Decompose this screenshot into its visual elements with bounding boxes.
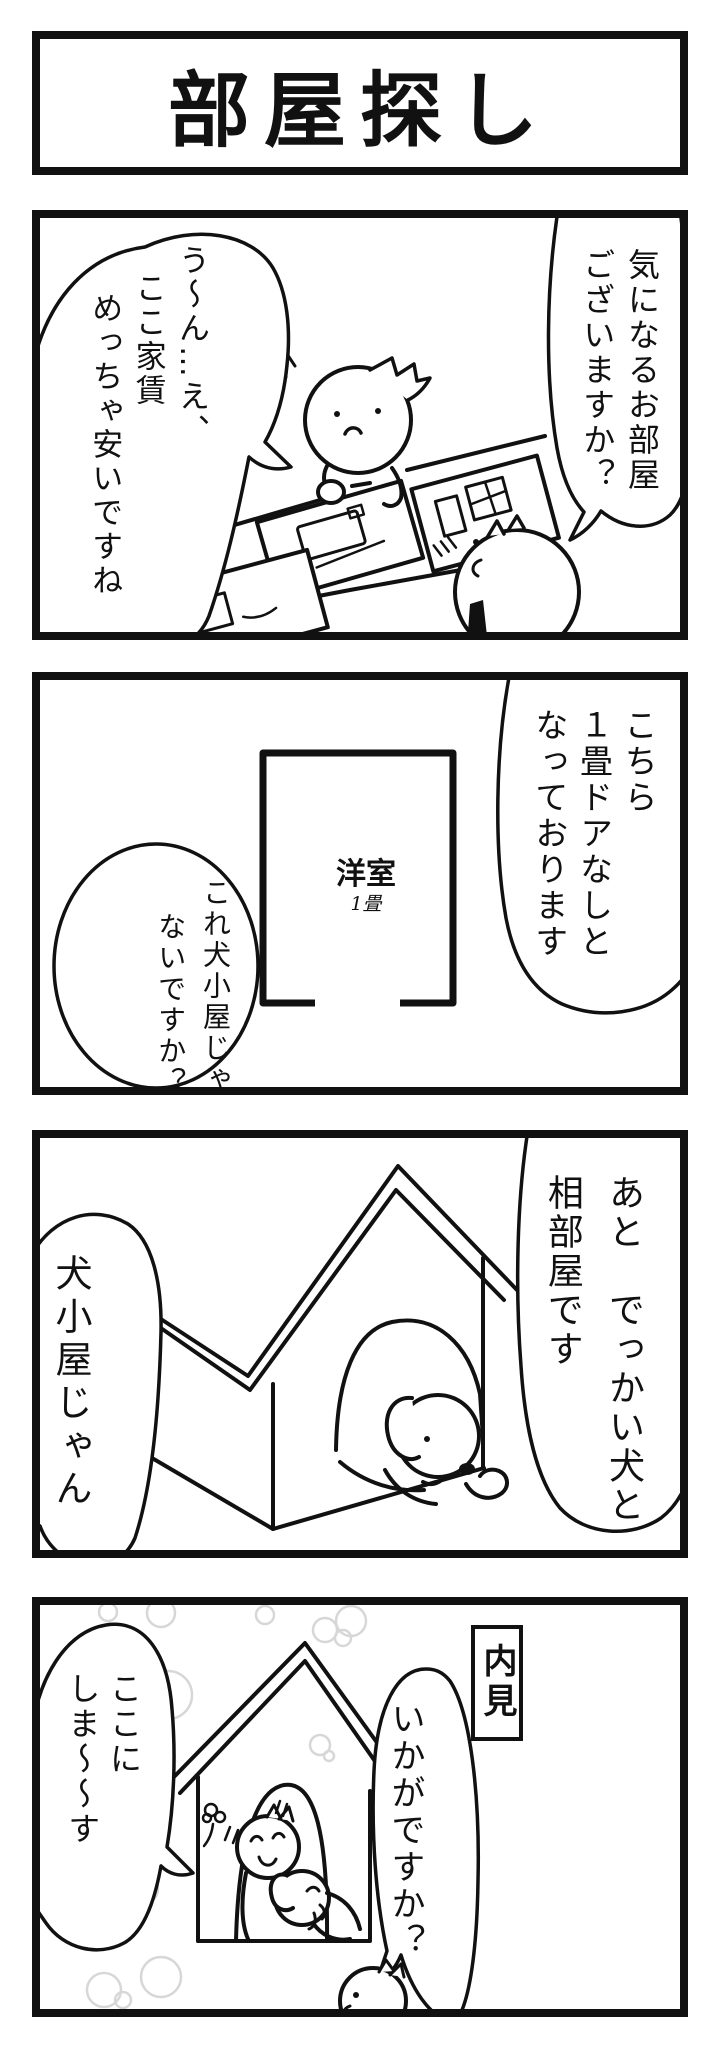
speech-bubble-text-agent: こちら １畳ドアなしと なっております xyxy=(526,708,660,960)
doghouse-drawing xyxy=(144,1166,517,1529)
panel-4: 内見 いかがですか？ ここに しま〜〜す xyxy=(32,1597,688,2017)
agent-character-drawing xyxy=(340,1960,406,2009)
speech-line: めっちゃ安いですね xyxy=(82,244,125,598)
speech-line: あと でっかい犬と xyxy=(593,1174,654,1525)
speech-line: いかがですか？ xyxy=(380,1701,428,1960)
panel-3: あと でっかい犬と 相部屋です 犬小屋じゃん xyxy=(32,1130,688,1558)
speech-bubble-text-agent: いかがですか？ xyxy=(380,1701,428,1960)
speech-line: なっております xyxy=(526,708,571,960)
scene-caption-box: 内見 xyxy=(471,1625,523,1741)
speech-bubble-text-agent: 気になるお部屋 ございますか？ xyxy=(574,248,664,493)
scene-caption: 内見 xyxy=(480,1643,514,1723)
speech-line: 相部屋です xyxy=(532,1174,593,1525)
speech-line: 気になるお部屋 xyxy=(619,248,664,493)
speech-line: ここ家賃 xyxy=(125,244,168,598)
speech-line: こちら xyxy=(615,708,660,960)
speech-bubble-text-customer: ここに しま〜〜す xyxy=(61,1672,144,1847)
speech-line: ございますか？ xyxy=(574,248,619,493)
flower-decoration xyxy=(203,1804,225,1846)
speech-line: これ犬小屋じゃ xyxy=(192,878,237,1095)
customer-character-drawing xyxy=(277,354,430,506)
panel-1: 気になるお部屋 ございますか？ う〜ん…え、 ここ家賃 めっちゃ安いですね xyxy=(32,210,688,640)
speech-bubble-text-customer: う〜ん…え、 ここ家賃 めっちゃ安いですね xyxy=(82,244,212,598)
speech-line: ないですか？ xyxy=(147,878,192,1095)
speech-line: １畳ドアなしと xyxy=(571,708,616,960)
panel-2: 洋室 1畳 こちら １畳ドアなしと なっております これ犬小屋じゃ ないですか？ xyxy=(32,672,688,1095)
speech-bubble-text-customer: 犬小屋じゃん xyxy=(44,1254,96,1512)
speech-bubble-text-agent: あと でっかい犬と 相部屋です xyxy=(532,1174,654,1525)
speech-line: 犬小屋じゃん xyxy=(44,1254,96,1512)
speech-bubble-text-customer: これ犬小屋じゃ ないですか？ xyxy=(147,878,237,1095)
floor-plan-room-type: 洋室 xyxy=(271,858,461,892)
floor-plan-room-size: 1畳 xyxy=(271,892,461,916)
comic-page: 部屋探し xyxy=(0,0,720,2056)
speech-line: ここに xyxy=(102,1672,144,1847)
title-panel: 部屋探し xyxy=(32,31,688,175)
dog-drawing xyxy=(385,1395,507,1504)
comic-title: 部屋探し xyxy=(40,39,680,167)
speech-line: しま〜〜す xyxy=(61,1672,103,1847)
floor-plan-labels: 洋室 1畳 xyxy=(271,858,461,916)
speech-line: う〜ん…え、 xyxy=(169,244,212,598)
